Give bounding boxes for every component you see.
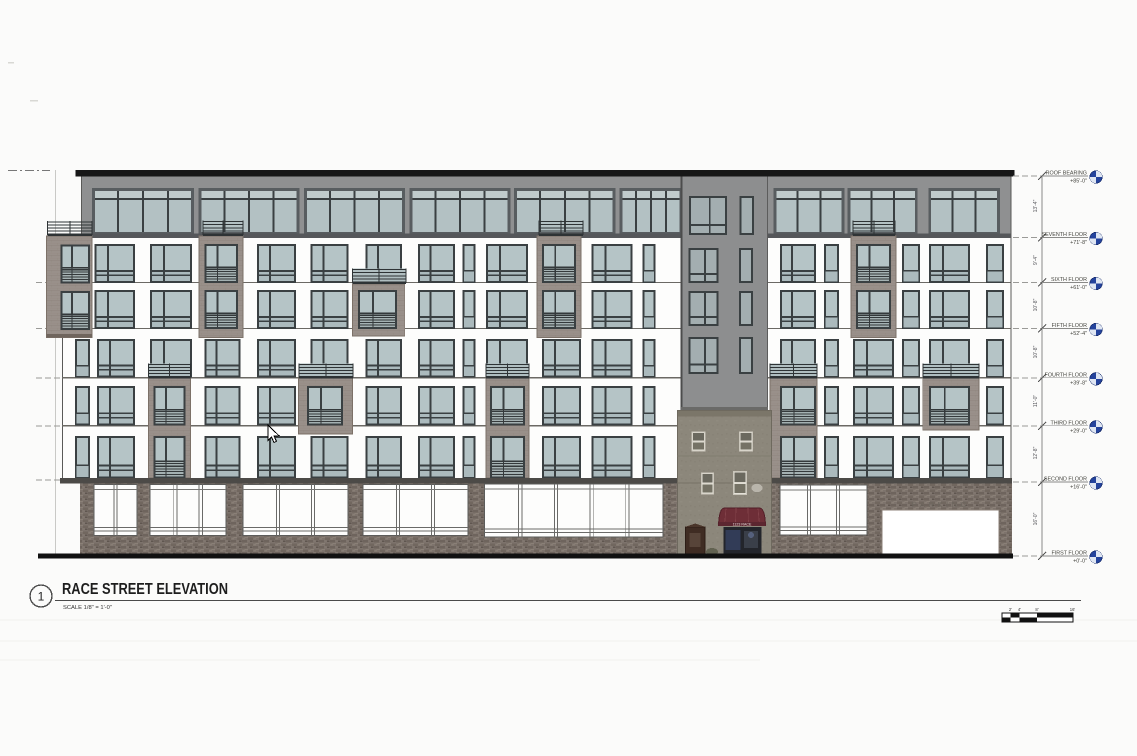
svg-text:+16'-0": +16'-0" xyxy=(1070,485,1087,491)
svg-text:SIXTH FLOOR: SIXTH FLOOR xyxy=(1051,277,1087,283)
svg-text:10'-8": 10'-8" xyxy=(1033,298,1039,311)
svg-text:SECOND FLOOR: SECOND FLOOR xyxy=(1044,477,1087,483)
svg-text:13'-4": 13'-4" xyxy=(1033,199,1039,212)
svg-text:+71'-8": +71'-8" xyxy=(1070,240,1087,246)
svg-text:1: 1 xyxy=(38,590,45,604)
svg-text:4': 4' xyxy=(1018,607,1021,612)
svg-text:16'-0": 16'-0" xyxy=(1033,512,1039,525)
svg-text:SCALE 1/8" = 1'-0": SCALE 1/8" = 1'-0" xyxy=(63,605,112,611)
svg-text:9'-4": 9'-4" xyxy=(1033,255,1039,265)
svg-text:11'-0": 11'-0" xyxy=(1033,395,1039,408)
svg-text:+85'-0": +85'-0" xyxy=(1070,179,1087,185)
svg-text:SEVENTH FLOOR: SEVENTH FLOOR xyxy=(1041,232,1087,238)
svg-text:FIFTH FLOOR: FIFTH FLOOR xyxy=(1052,323,1087,329)
svg-text:1123 RACE: 1123 RACE xyxy=(733,522,752,526)
svg-text:12'-8": 12'-8" xyxy=(1033,446,1039,459)
svg-text:+52'-4": +52'-4" xyxy=(1070,331,1087,337)
svg-text:16': 16' xyxy=(1070,607,1076,612)
svg-text:+0'-0": +0'-0" xyxy=(1073,559,1087,565)
svg-text:+29'-0": +29'-0" xyxy=(1070,428,1087,434)
svg-text:FOURTH FLOOR: FOURTH FLOOR xyxy=(1045,372,1088,378)
svg-text:+39'-8": +39'-8" xyxy=(1070,380,1087,386)
svg-text:+61'-0": +61'-0" xyxy=(1070,285,1087,291)
svg-text:10'-8": 10'-8" xyxy=(1033,345,1039,358)
svg-text:8': 8' xyxy=(1035,607,1038,612)
svg-text:2': 2' xyxy=(1009,607,1012,612)
svg-text:PARKING: PARKING xyxy=(912,500,970,509)
svg-text:THIRD FLOOR: THIRD FLOOR xyxy=(1050,420,1087,426)
svg-text:FIRST FLOOR: FIRST FLOOR xyxy=(1051,551,1087,557)
svg-text:RACE STREET ELEVATION: RACE STREET ELEVATION xyxy=(62,581,228,598)
svg-text:ROOF BEARING: ROOF BEARING xyxy=(1046,171,1087,177)
